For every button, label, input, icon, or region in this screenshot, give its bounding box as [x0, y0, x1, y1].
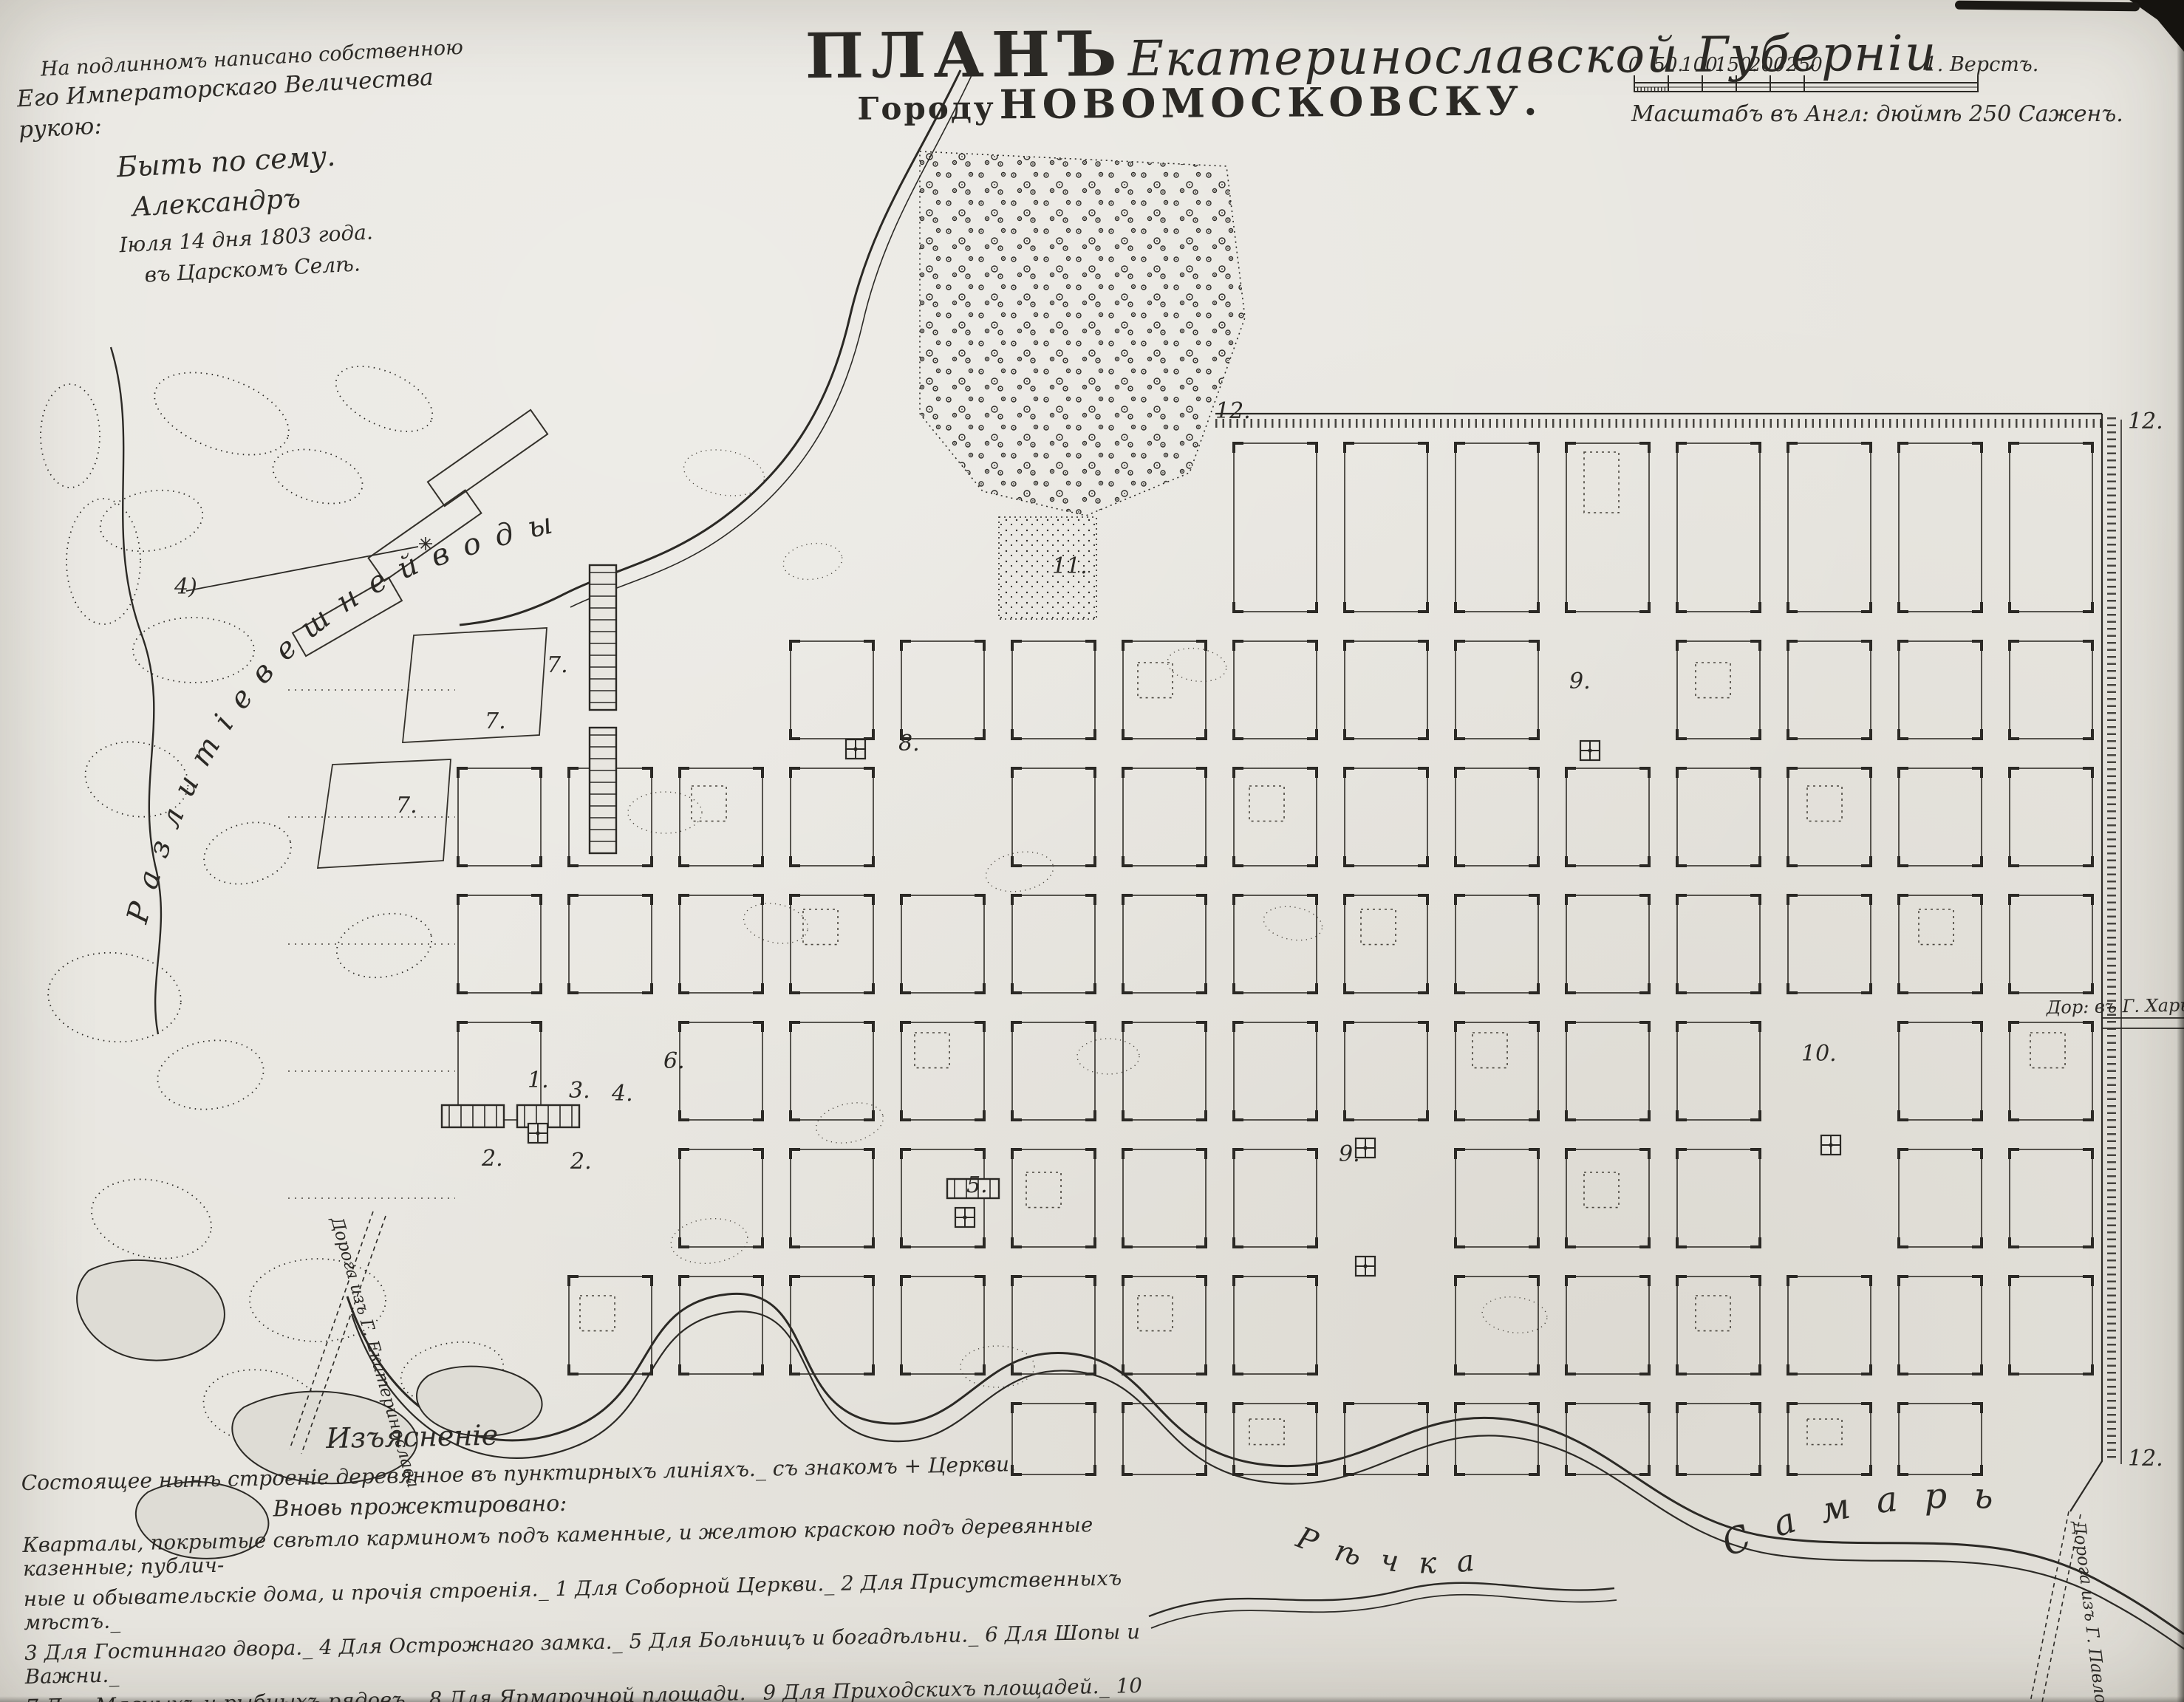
city-block	[1234, 1276, 1317, 1374]
flood-contour	[153, 1033, 267, 1115]
city-block	[1012, 895, 1095, 993]
block-corner-marks	[1234, 1149, 1317, 1247]
city-block	[1456, 641, 1538, 739]
city-block	[1677, 895, 1760, 993]
city-block	[1234, 641, 1317, 739]
city-block	[1123, 1022, 1206, 1120]
block-corner-marks	[1677, 1022, 1760, 1120]
church-icon	[1356, 1257, 1375, 1276]
city-block	[1345, 768, 1427, 866]
map-number-label: 9.	[1339, 1141, 1360, 1167]
city-block	[1566, 1404, 1649, 1474]
city-block	[1566, 768, 1649, 866]
old-building-contour	[628, 792, 702, 833]
irregular-block	[428, 410, 547, 506]
block-corner-marks	[1899, 1022, 1982, 1120]
wooden-building-outline	[1584, 1172, 1619, 1208]
block-corner-marks	[1345, 1022, 1427, 1120]
city-block	[901, 1276, 984, 1374]
map-number-label: 5.	[966, 1172, 988, 1198]
imperial-inscription: На подлинномъ написано собственною Его И…	[15, 34, 485, 295]
block-corner-marks	[458, 768, 541, 866]
city-block	[2010, 1276, 2092, 1374]
city-block	[1899, 1276, 1982, 1374]
city-block	[1788, 1404, 1871, 1474]
city-block	[791, 641, 873, 739]
old-building-contour	[781, 540, 844, 584]
city-block	[1788, 443, 1871, 612]
city-block	[1123, 1149, 1206, 1247]
map-title: ПЛАНЪ Екатеринославской Губерніи Городу …	[805, 13, 1677, 129]
old-building-contour	[813, 1097, 887, 1149]
city-block	[680, 895, 762, 993]
title-word-city: Городу	[857, 89, 996, 126]
block-corner-marks	[1899, 1149, 1982, 1247]
flood-contour	[267, 440, 368, 513]
block-corner-marks	[1456, 895, 1538, 993]
city-block	[1234, 768, 1317, 866]
city-block	[1234, 443, 1317, 612]
wooden-building-outline	[2030, 1033, 2065, 1068]
block-corner-marks	[2010, 895, 2092, 993]
block-corner-marks	[1788, 641, 1871, 739]
block-corner-marks	[1566, 895, 1649, 993]
map-number-label: 12.	[1215, 398, 1251, 424]
city-block	[2010, 1022, 2092, 1120]
map-number-label: 12.	[2128, 409, 2163, 434]
block-corner-marks	[901, 1022, 984, 1120]
block-corner-marks	[791, 1022, 873, 1120]
block-corner-marks	[1012, 1022, 1095, 1120]
church-icon	[1580, 741, 1600, 760]
block-corner-marks	[1677, 1149, 1760, 1247]
map-number-label: 1.	[528, 1067, 549, 1093]
wooden-building-outline	[1138, 663, 1173, 698]
city-block	[458, 768, 541, 866]
map-number-label: 7.	[547, 652, 568, 678]
block-corner-marks	[1234, 1022, 1317, 1120]
map-number-label: 12.	[2128, 1446, 2163, 1472]
block-corner-marks	[901, 895, 984, 993]
block-corner-marks	[458, 895, 541, 993]
map-number-label: 4.	[611, 1081, 633, 1107]
city-block	[569, 1276, 652, 1374]
city-block	[2010, 895, 2092, 993]
city-block	[1899, 443, 1982, 612]
flood-contour	[197, 813, 298, 893]
block-corner-marks	[791, 895, 873, 993]
creek-line	[111, 347, 161, 1034]
flood-contour	[331, 905, 438, 985]
irregular-block	[403, 628, 547, 742]
block-corner-marks	[2010, 1022, 2092, 1120]
block-corner-marks	[901, 641, 984, 739]
block-corner-marks	[1788, 895, 1871, 993]
city-block	[1677, 443, 1760, 612]
wooden-building-outline	[692, 786, 726, 821]
block-corner-marks	[1677, 641, 1760, 739]
city-block	[1345, 1404, 1427, 1474]
block-corner-marks	[1788, 1404, 1871, 1474]
city-block	[680, 1022, 762, 1120]
block-corner-marks	[901, 1276, 984, 1374]
block-corner-marks	[1899, 768, 1982, 866]
city-block	[680, 1149, 762, 1247]
city-block	[1899, 768, 1982, 866]
scale-caption: Масштабъ въ Англ: дюймѣ 250 Саженъ.	[1631, 101, 2123, 127]
block-corner-marks	[1234, 1276, 1317, 1374]
block-corner-marks	[1123, 1149, 1206, 1247]
city-block	[1566, 443, 1649, 612]
block-corner-marks	[791, 641, 873, 739]
city-block	[1456, 1022, 1538, 1120]
wooden-building-outline	[1919, 909, 1953, 945]
old-building-contour	[1261, 902, 1325, 944]
city-block	[1456, 895, 1538, 993]
block-corner-marks	[1899, 641, 1982, 739]
city-block	[1677, 641, 1760, 739]
block-corner-marks	[1456, 1149, 1538, 1247]
map-number-label: 7.	[396, 793, 417, 818]
block-corner-marks	[680, 1149, 762, 1247]
block-corner-marks	[1456, 1022, 1538, 1120]
flood-contour	[66, 499, 140, 624]
block-corner-marks	[1234, 641, 1317, 739]
city-block	[1234, 1404, 1317, 1474]
city-block	[2010, 768, 2092, 866]
city-block	[1012, 1022, 1095, 1120]
area-label: Р ѣ ч к а	[1291, 1520, 1481, 1580]
block-corner-marks	[569, 895, 652, 993]
block-corner-marks	[1345, 443, 1427, 612]
church-icon	[1821, 1135, 1840, 1155]
block-corner-marks	[2010, 1276, 2092, 1374]
city-block	[901, 1022, 984, 1120]
old-building-contour	[1165, 645, 1228, 686]
city-block	[569, 895, 652, 993]
block-corner-marks	[1123, 641, 1206, 739]
wooded-area	[920, 151, 1245, 516]
block-corner-marks	[791, 1149, 873, 1247]
wooden-building-outline	[1696, 1296, 1730, 1331]
block-corner-marks	[1012, 895, 1095, 993]
irregular-block	[318, 759, 451, 868]
city-block	[2010, 443, 2092, 612]
church-icon	[955, 1208, 975, 1227]
block-corner-marks	[569, 1276, 652, 1374]
block-corner-marks	[1234, 1404, 1317, 1474]
map-number-label: 9.	[1569, 669, 1591, 694]
wooden-building-outline	[1361, 909, 1396, 945]
block-corner-marks	[2010, 1149, 2092, 1247]
wooden-building-outline	[1696, 663, 1730, 698]
city-block	[1566, 1276, 1649, 1374]
city-block	[1012, 768, 1095, 866]
block-corner-marks	[1677, 1404, 1760, 1474]
map-number-label: 2.	[481, 1146, 503, 1172]
block-corner-marks	[1677, 895, 1760, 993]
city-block	[1012, 1149, 1095, 1247]
city-block	[1123, 641, 1206, 739]
block-corner-marks	[1012, 768, 1095, 866]
old-building-contour	[680, 444, 768, 502]
road-label: Дор: въ Г. Харьковъ	[2046, 994, 2184, 1018]
block-corner-marks	[2010, 641, 2092, 739]
city-block	[1345, 1022, 1427, 1120]
city-block	[1234, 1149, 1317, 1247]
block-corner-marks	[680, 895, 762, 993]
block-corner-marks	[1456, 1276, 1538, 1374]
city-block	[2010, 641, 2092, 739]
city-block	[1123, 1276, 1206, 1374]
sheet-edge-shadow	[0, 1696, 2184, 1702]
block-corner-marks	[1788, 443, 1871, 612]
map-number-label: 3.	[569, 1078, 590, 1104]
block-corner-marks	[1788, 768, 1871, 866]
city-block	[1788, 1276, 1871, 1374]
road-label: Дорога изъ Г. Павлограда	[2069, 1520, 2117, 1702]
map-number-label: 2.	[570, 1149, 592, 1175]
block-corner-marks	[1123, 768, 1206, 866]
block-corner-marks	[1123, 1276, 1206, 1374]
wooden-building-outline	[1249, 786, 1284, 821]
block-corner-marks	[1345, 768, 1427, 866]
city-block	[1677, 1149, 1760, 1247]
block-corner-marks	[1456, 443, 1538, 612]
city-block	[901, 895, 984, 993]
block-corner-marks	[1788, 1276, 1871, 1374]
church-icon	[528, 1124, 547, 1143]
city-block	[1899, 1404, 1982, 1474]
city-block	[1123, 768, 1206, 866]
flood-contour	[44, 947, 185, 1047]
block-corner-marks	[1345, 641, 1427, 739]
city-block	[1234, 895, 1317, 993]
block-corner-marks	[2010, 768, 2092, 866]
block-corner-marks	[1012, 1276, 1095, 1374]
rampart-line	[1215, 414, 2102, 1511]
city-block	[791, 895, 873, 993]
wooden-building-outline	[1249, 1419, 1284, 1445]
map-number-label: 8.	[898, 731, 920, 756]
city-block	[1566, 895, 1649, 993]
wooden-building-outline	[1584, 452, 1619, 513]
block-corner-marks	[1234, 895, 1317, 993]
city-block	[1456, 1276, 1538, 1374]
city-block	[1012, 641, 1095, 739]
church-icon	[846, 739, 865, 759]
block-corner-marks	[1345, 1404, 1427, 1474]
block-corner-marks	[2010, 443, 2092, 612]
city-block	[791, 768, 873, 866]
map-number-label: 4)	[174, 574, 197, 600]
city-block	[680, 768, 762, 866]
block-corner-marks	[1123, 1022, 1206, 1120]
city-block	[1899, 641, 1982, 739]
block-corner-marks	[1566, 443, 1649, 612]
city-block	[2010, 1149, 2092, 1247]
block-corner-marks	[1012, 1149, 1095, 1247]
city-block	[901, 641, 984, 739]
flood-contour	[84, 1169, 219, 1269]
city-block	[1677, 768, 1760, 866]
city-block	[1566, 1149, 1649, 1247]
block-corner-marks	[1899, 1276, 1982, 1374]
wooden-building-outline	[915, 1033, 949, 1068]
map-number-label: 10.	[1801, 1041, 1837, 1067]
wooden-building-outline	[1473, 1033, 1507, 1068]
wooden-building-outline	[1807, 786, 1842, 821]
block-corner-marks	[1234, 768, 1317, 866]
city-block	[458, 895, 541, 993]
city-block	[1234, 1022, 1317, 1120]
flood-contour	[143, 356, 299, 471]
flood-contour	[41, 384, 100, 488]
old-building-contour	[1077, 1039, 1139, 1074]
map-number-label: 11.	[1052, 553, 1088, 579]
city-block	[1456, 768, 1538, 866]
city-block	[1345, 641, 1427, 739]
wooden-building-outline	[1807, 1419, 1842, 1445]
city-block	[1677, 1022, 1760, 1120]
map-number-label: 7.	[485, 708, 506, 734]
city-block	[1566, 1022, 1649, 1120]
scale-verst-label: 1. Верстъ.	[1925, 53, 2039, 76]
ravine-line	[570, 74, 972, 607]
city-block	[1899, 1022, 1982, 1120]
title-city-name: НОВОМОСКОВСКУ.	[999, 77, 1542, 128]
block-corner-marks	[680, 768, 762, 866]
road-to-kharkov	[2102, 1018, 2184, 1028]
swamp-lake	[77, 1260, 225, 1361]
city-block	[791, 1149, 873, 1247]
block-corner-marks	[1234, 443, 1317, 612]
city-block	[1345, 443, 1427, 612]
flood-contour	[326, 353, 442, 445]
legend-block: Изъясненіе Состоящее нынѣ строеніе дерев…	[20, 1406, 1179, 1702]
city-block	[1456, 443, 1538, 612]
flood-contour	[95, 482, 208, 558]
city-block	[791, 1022, 873, 1120]
block-corner-marks	[1456, 768, 1538, 866]
sheet-edge-shadow	[2177, 0, 2184, 1702]
block-corner-marks	[1677, 768, 1760, 866]
wooden-building-outline	[1138, 1296, 1173, 1331]
block-corner-marks	[1899, 443, 1982, 612]
city-block	[1677, 1404, 1760, 1474]
city-block	[1788, 895, 1871, 993]
block-corner-marks	[1677, 1276, 1760, 1374]
city-block	[1456, 1149, 1538, 1247]
city-block	[1788, 641, 1871, 739]
city-block	[1899, 1149, 1982, 1247]
block-corner-marks	[1123, 895, 1206, 993]
block-corner-marks	[1012, 641, 1095, 739]
block-corner-marks	[1566, 1022, 1649, 1120]
block-corner-marks	[1566, 768, 1649, 866]
city-block	[1012, 1276, 1095, 1374]
old-building-contour	[740, 898, 812, 949]
block-corner-marks	[791, 768, 873, 866]
city-block	[1123, 895, 1206, 993]
wooden-building-outline	[580, 1296, 615, 1331]
map-number-label: 6.	[663, 1048, 685, 1074]
wooden-building-outline	[803, 909, 838, 945]
block-corner-marks	[1566, 1149, 1649, 1247]
block-corner-marks	[1677, 443, 1760, 612]
block-corner-marks	[1899, 1404, 1982, 1474]
block-corner-marks	[1566, 1404, 1649, 1474]
old-building-contour	[960, 1346, 1034, 1387]
wooden-building-outline	[1026, 1172, 1061, 1208]
block-corner-marks	[680, 1022, 762, 1120]
long-building	[590, 565, 616, 710]
city-block	[1677, 1276, 1760, 1374]
map-sheet: 12.12.12.11.9.8.9.10.7.7.7.6.1.3.4.2.2.5…	[0, 0, 2184, 1702]
block-corner-marks	[1566, 1276, 1649, 1374]
block-corner-marks	[1456, 641, 1538, 739]
old-building-contour	[983, 847, 1057, 896]
city-block	[1788, 768, 1871, 866]
area-label: С а м а р ь	[1716, 1475, 2002, 1565]
